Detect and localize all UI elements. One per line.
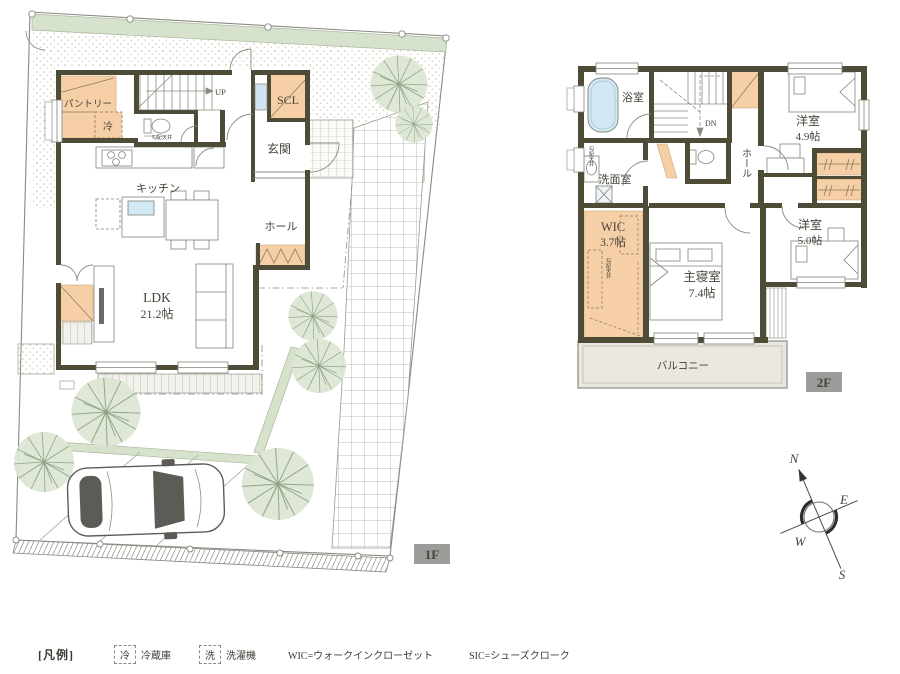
legend-title: [凡例] bbox=[38, 646, 74, 663]
compass-e: E bbox=[839, 492, 848, 507]
tree-icon bbox=[395, 105, 432, 142]
gravel-patch bbox=[18, 344, 54, 374]
label-ldk-size: 21.2帖 bbox=[140, 306, 173, 321]
label-washroom: 洗面室 bbox=[599, 172, 632, 186]
entrance-porch bbox=[309, 120, 353, 178]
house-2f: 浴室 洋室 4.9帖 洗面室 ホール 洋室 5.0帖 WIC 3.7帖 主寝室 … bbox=[567, 63, 869, 388]
step-box bbox=[62, 322, 92, 344]
tree-icon bbox=[72, 378, 141, 447]
compass-icon: N E W S bbox=[760, 451, 880, 585]
label-up: UP bbox=[215, 87, 226, 97]
label-fridge: 冷 bbox=[103, 120, 113, 133]
label-west1: 洋室 bbox=[796, 113, 820, 128]
lower-roof-strip bbox=[766, 288, 786, 338]
floorplan-svg: パントリー 冷 SCL 玄関 キッチン ホール LDK 21.2帖 UP 勾配天… bbox=[0, 0, 900, 640]
bathtub bbox=[588, 78, 618, 132]
label-dn: DN bbox=[705, 119, 717, 128]
legend-sic-definition: SIC=シューズクローク bbox=[469, 647, 570, 662]
closet-b bbox=[816, 179, 862, 200]
label-genkan: 玄関 bbox=[267, 141, 291, 156]
legend-fridge-symbol: 冷 bbox=[114, 645, 136, 664]
label-west1-size: 4.9帖 bbox=[796, 130, 821, 143]
label-master: 主寝室 bbox=[683, 269, 721, 284]
tree-icon bbox=[371, 56, 428, 113]
label-wic-size: 3.7帖 bbox=[600, 235, 626, 249]
floor-tag-2f-text: 2F bbox=[817, 375, 832, 390]
label-hall-2f: ホール bbox=[740, 148, 752, 178]
floor-tag-1f: 1F bbox=[414, 544, 450, 564]
floor-tag-2f: 2F bbox=[806, 372, 842, 392]
label-pantry: パントリー bbox=[64, 99, 112, 110]
legend-washer-symbol: 洗 bbox=[199, 645, 221, 664]
nightstand bbox=[828, 228, 844, 242]
sofa bbox=[196, 264, 233, 348]
tree-icon bbox=[292, 339, 346, 393]
label-hall-1f: ホール bbox=[265, 220, 298, 233]
floor-plan-canvas: パントリー 冷 SCL 玄関 キッチン ホール LDK 21.2帖 UP 勾配天… bbox=[0, 0, 900, 674]
compass-w: W bbox=[795, 534, 807, 549]
toilet-2f bbox=[689, 150, 714, 164]
compass-n: N bbox=[789, 451, 800, 466]
equipment-box bbox=[60, 381, 74, 389]
label-master-size: 7.4帖 bbox=[688, 285, 715, 300]
label-sloped-2fa: 勾配天井 bbox=[588, 145, 594, 169]
label-sloped-2fb: 勾配天井 bbox=[605, 257, 611, 281]
label-wic: WIC bbox=[601, 220, 625, 234]
legend-washer-label: 洗濯機 bbox=[226, 647, 256, 662]
label-sloped-1f: 勾配天井 bbox=[152, 133, 173, 141]
tree-icon bbox=[288, 291, 337, 340]
tv-board bbox=[94, 266, 114, 342]
label-scl: SCL bbox=[277, 93, 299, 107]
legend-wic-definition: WIC=ウォークインクローゼット bbox=[288, 647, 433, 662]
tree-icon bbox=[242, 448, 314, 520]
compass-s: S bbox=[839, 567, 846, 582]
toilet-1f bbox=[144, 119, 170, 133]
label-west2-size: 5.0帖 bbox=[798, 234, 823, 247]
label-balcony: バルコニー bbox=[657, 360, 709, 372]
label-bath: 浴室 bbox=[622, 90, 644, 104]
label-ldk: LDK bbox=[143, 290, 171, 305]
dining-set bbox=[166, 191, 218, 249]
desk bbox=[767, 158, 804, 175]
car-icon bbox=[67, 457, 226, 542]
legend-fridge-label: 冷蔵庫 bbox=[141, 647, 171, 662]
label-west2: 洋室 bbox=[798, 217, 822, 232]
tree-icon bbox=[14, 432, 74, 492]
floor-tag-1f-text: 1F bbox=[425, 547, 440, 562]
legend: [凡例] 冷 冷蔵庫 洗 洗濯機 WIC=ウォークインクローゼット SIC=シュ… bbox=[38, 645, 878, 664]
label-kitchen: キッチン bbox=[136, 182, 180, 195]
